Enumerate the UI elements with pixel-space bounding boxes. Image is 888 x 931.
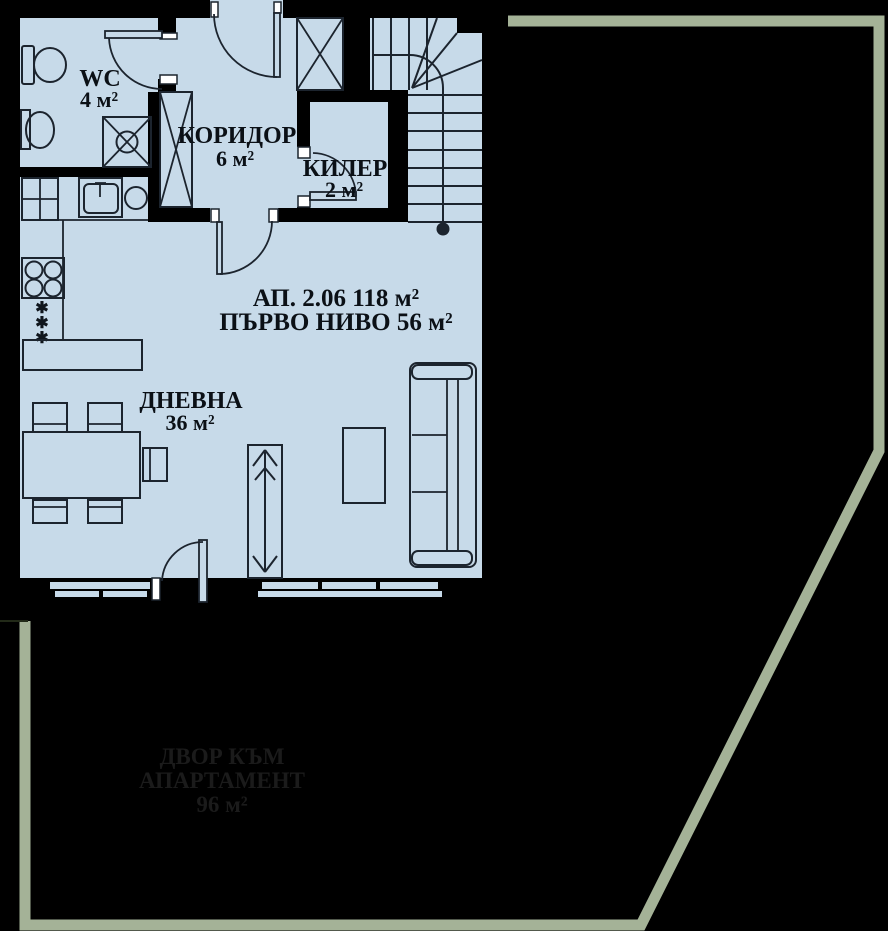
corridor-door-jamb-left [211, 209, 219, 222]
wall-corridor-bottom-left [148, 208, 210, 222]
stair-start-dot [437, 223, 450, 236]
window-left [50, 582, 150, 589]
wall-stair-notch [457, 18, 482, 33]
apartment-level-label: ПЪРВО НИВО 56 м² [219, 309, 452, 336]
entrance-door-leaf [274, 13, 280, 77]
terrace-door-leaf [199, 540, 207, 602]
living-area: 36 м² [165, 410, 214, 435]
wc-door-jamb-bottom [160, 75, 177, 84]
storage-door-jamb-bottom [298, 196, 310, 207]
storage-area: 2 м² [325, 177, 363, 202]
wall-corridor-left [148, 92, 160, 222]
floor-plan-page: ДВОР КЪМ АПАРТАМЕНТ 96 м² [0, 0, 888, 931]
entrance-jamb-right [274, 2, 281, 13]
yard-label-line2: АПАРТАМЕНТ [139, 768, 305, 793]
wall-storage-left-lower [297, 207, 310, 222]
floor-plan-svg: ДВОР КЪМ АПАРТАМЕНТ 96 м² [0, 0, 888, 931]
apartment-id-label: АП. 2.06 118 м² [253, 285, 419, 312]
hot-water-star-icon: ✱ [35, 330, 48, 347]
window-right-pane-2 [322, 582, 376, 589]
yard-label-line1: ДВОР КЪМ [160, 744, 285, 769]
window-left-sill-2 [103, 591, 147, 597]
wall-top-right [283, 0, 505, 18]
window-right-pane-3 [380, 582, 438, 589]
yard-label-area: 96 м² [196, 792, 247, 817]
terrace-door-jamb [152, 578, 160, 600]
window-left-sill-1 [55, 591, 99, 597]
wall-right [482, 0, 505, 620]
corridor-door-leaf [217, 222, 222, 274]
entrance-opening [210, 0, 283, 18]
corridor-area: 6 м² [216, 146, 254, 171]
window-right-pane-1 [262, 582, 318, 589]
wc-door-leaf [105, 31, 162, 38]
wc-area: 4 м² [80, 87, 118, 112]
wall-left [0, 0, 20, 620]
wall-top-left [0, 0, 210, 18]
wall-stair-left [343, 18, 370, 92]
wall-wc-bottom [20, 167, 158, 177]
wall-storage-right [388, 102, 408, 222]
corridor-door-jamb-right [269, 209, 278, 222]
wall-storage-left-upper [297, 92, 310, 147]
window-right-sill [258, 591, 442, 597]
